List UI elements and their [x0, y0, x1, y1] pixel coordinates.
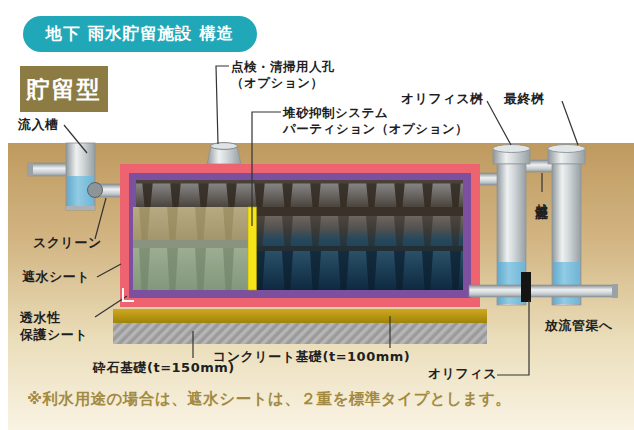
title-badge: 地下 雨水貯留施設 構造 [23, 16, 257, 52]
label-partition-line2: パーティション（オプション） [283, 121, 468, 137]
label-manhole-line2: （オプション） [231, 75, 323, 91]
label-barrier-sheet: 遮水シート [22, 269, 90, 285]
label-protect-sheet-line1: 透水性 [20, 310, 61, 326]
underground-rainwater-storage-diagram: 地下 雨水貯留施設 構造 貯留型 流入槽 点検・清掃用人孔 （オプション） 堆砂… [0, 0, 634, 430]
label-concrete-base: コンクリート基礎(t=100mm) [213, 349, 410, 365]
concrete-foundation-layer [113, 309, 487, 323]
label-overflow-pipe: 越流管 [533, 193, 549, 199]
screen-ball [88, 183, 103, 198]
label-protect-sheet-line2: 保護シート [20, 327, 88, 343]
left-section-band [133, 240, 248, 248]
inspection-manhole-lid [211, 143, 238, 150]
label-final-basin: 最終桝 [504, 91, 545, 107]
leader-manhole [216, 66, 229, 144]
orifice-plate [521, 272, 531, 302]
discharge-pipe [469, 285, 616, 297]
label-partition-line1: 堆砂抑制システム [283, 105, 388, 121]
type-label: 貯留型 [20, 66, 108, 112]
footnote: ※利水用途の場合は、遮水シートは、２重を標準タイプとします。 [27, 389, 511, 410]
label-orifice: オリフィス [428, 366, 497, 382]
label-screen: スクリーン [33, 235, 102, 251]
label-orifice-basin: オリフィス桝 [401, 91, 484, 107]
left-section-upper-posts [133, 207, 248, 240]
inflow-pipe [28, 163, 69, 176]
label-manhole-line1: 点検・清掃用人孔 [231, 59, 335, 75]
leader-orifice-basin [487, 101, 511, 145]
module-row1-posts [136, 180, 463, 207]
module-top-band [136, 180, 463, 184]
inflow-pipe-cap [28, 163, 33, 176]
discharge-pipe-cap [612, 284, 618, 298]
tank-interior [133, 180, 463, 290]
left-section-lower-posts [133, 248, 248, 290]
label-inflow-tank: 流入槽 [18, 117, 59, 133]
gravel-foundation-layer [113, 323, 487, 344]
final-basin-cylinder [548, 145, 585, 306]
leader-final-basin [562, 101, 578, 145]
label-discharge: 放流管渠へ [545, 318, 613, 334]
inflow-tank-base [66, 206, 95, 210]
